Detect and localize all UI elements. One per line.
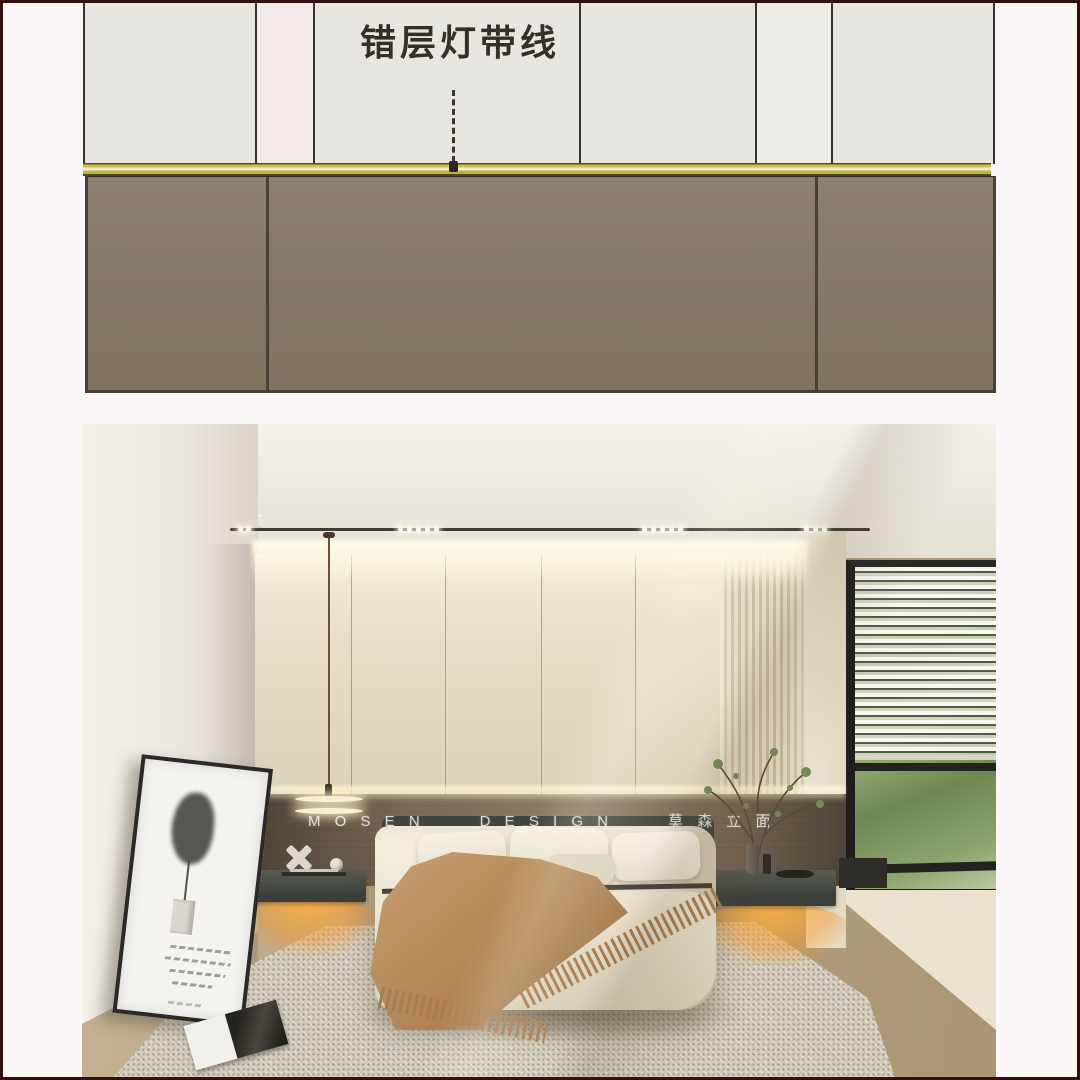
pendant-canopy xyxy=(323,532,335,538)
spotlight-dot xyxy=(660,527,665,532)
wall-panel-seam xyxy=(445,554,446,800)
spotlight-dot xyxy=(642,527,647,532)
window-mid-rail xyxy=(855,763,996,771)
headboard-panel-wall xyxy=(255,554,720,800)
panel-seam xyxy=(266,177,269,390)
spotlight-dot xyxy=(822,527,827,532)
spotlight-dot xyxy=(669,527,674,532)
wall-panel-seam xyxy=(541,554,542,800)
recessed-track-light xyxy=(230,528,870,531)
pendant-lamp-disc xyxy=(295,796,363,802)
bedroom-render-photo: M O S E N D E S I G N 莫 森 立 面 xyxy=(82,424,996,1080)
panel-seam xyxy=(815,177,818,390)
panel-seam xyxy=(255,0,257,164)
lower-wood-panels xyxy=(85,176,996,393)
spotlight-dot xyxy=(434,527,439,532)
cove-light-glow xyxy=(252,540,808,582)
artwork-plant-stem xyxy=(183,860,190,902)
panel-seam xyxy=(831,0,833,164)
spotlight-dot xyxy=(238,527,243,532)
artwork-script-line xyxy=(170,945,233,955)
pillow xyxy=(611,830,701,881)
artwork-plant-image xyxy=(168,790,218,866)
venetian-blinds xyxy=(855,567,996,760)
spotlight-dot xyxy=(246,527,251,532)
plant-vase xyxy=(746,844,759,874)
spotlight-dot xyxy=(804,527,809,532)
narrow-panel xyxy=(257,0,313,164)
wall-panel-seam xyxy=(351,554,352,800)
pendant-cord xyxy=(328,536,330,798)
staggered-light-strip xyxy=(83,163,991,176)
window xyxy=(846,560,996,897)
spotlight-dot xyxy=(813,527,818,532)
spotlight-dot xyxy=(407,527,412,532)
artwork-script-line xyxy=(169,969,226,978)
leader-line xyxy=(452,90,455,162)
spotlight-dot xyxy=(416,527,421,532)
spotlight-dot xyxy=(678,527,683,532)
under-nightstand-glow-right xyxy=(694,902,854,966)
spotlight-dot xyxy=(398,527,403,532)
design-poster: 错层灯带线 xyxy=(0,0,1080,1080)
spotlight-dot xyxy=(425,527,430,532)
leader-endpoint-dot xyxy=(449,161,458,172)
artwork-script-line xyxy=(172,981,213,988)
spotlight-dot xyxy=(651,527,656,532)
narrow-panel-2 xyxy=(757,0,831,164)
candle-decor xyxy=(763,854,771,874)
artwork-signature xyxy=(167,1001,202,1008)
artwork-vase xyxy=(170,899,196,935)
panel-seam xyxy=(755,0,757,164)
wall-panel-seam xyxy=(635,554,636,800)
tray-decor xyxy=(776,870,814,878)
book-tray xyxy=(282,872,346,876)
artwork-script-line xyxy=(164,956,231,966)
annotation-label: 错层灯带线 xyxy=(310,14,610,66)
